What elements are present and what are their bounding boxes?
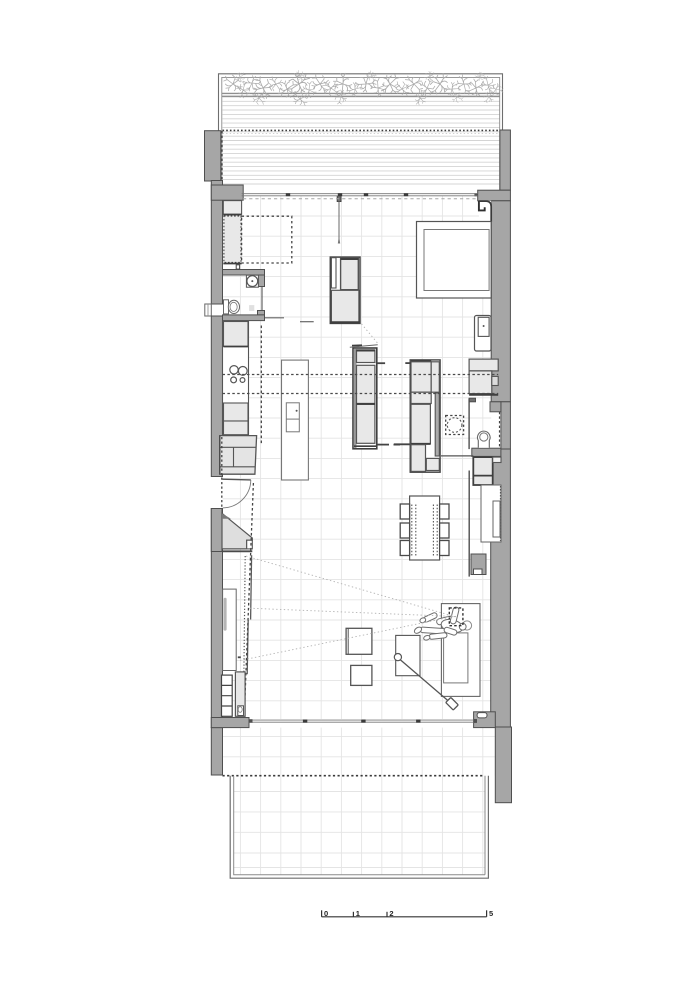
svg-text:0: 0 (324, 909, 328, 918)
svg-text:2: 2 (389, 909, 393, 918)
svg-text:5: 5 (489, 909, 493, 918)
svg-text:1: 1 (356, 909, 360, 918)
